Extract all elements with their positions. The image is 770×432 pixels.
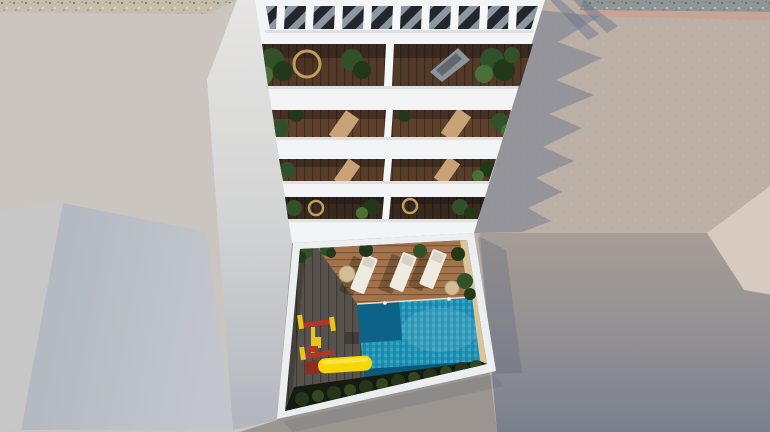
slab-shadow-line	[288, 219, 479, 222]
deck-drain	[345, 332, 359, 344]
hedge-bush	[327, 386, 341, 400]
pergola-slat	[334, 6, 343, 29]
pergola-slat	[392, 6, 401, 29]
terrace-plant	[289, 108, 303, 122]
pool-deep-section	[357, 301, 402, 343]
terrace-plant	[472, 170, 484, 182]
rooftop-pergola	[266, 6, 538, 29]
terrace-plant	[353, 61, 371, 79]
slab-shadow-line	[266, 86, 521, 89]
street-left	[0, 0, 292, 432]
render-canvas	[0, 0, 770, 432]
potted-plant	[457, 273, 473, 289]
aerial-render-scene	[0, 0, 770, 432]
potted-plant	[451, 247, 465, 261]
pergola-slat	[305, 6, 314, 29]
slab-shadow-line	[264, 30, 534, 33]
terrace-plant	[356, 207, 368, 219]
terrace-plant	[475, 65, 493, 83]
hedge-bush	[295, 392, 309, 406]
pergola-slat	[508, 6, 517, 29]
terrace-plant	[504, 47, 520, 63]
gravel-texture-right	[580, 0, 770, 12]
potted-plant	[464, 288, 476, 300]
pergola-slat	[276, 6, 285, 29]
swing-seat	[307, 346, 318, 352]
round-side-table	[445, 281, 459, 295]
terrace-plant	[286, 200, 302, 216]
round-side-table	[339, 266, 355, 282]
gravel-texture-left	[0, 0, 237, 14]
pool-light-dot	[383, 301, 387, 305]
hedge-bush	[344, 384, 356, 396]
terrace-plant	[273, 61, 293, 81]
pool-light-dot	[447, 297, 451, 301]
terrace-plant	[464, 207, 476, 219]
balcony-terrace-4	[285, 197, 485, 219]
pergola-slat	[421, 6, 430, 29]
pergola-slat	[363, 6, 372, 29]
pergola-slat	[450, 6, 459, 29]
pergola-slat	[479, 6, 488, 29]
slab-shadow-line	[283, 181, 490, 184]
potted-plant	[326, 248, 336, 258]
potted-plant	[413, 244, 427, 258]
water-glint	[402, 308, 478, 352]
hedge-bush	[312, 390, 324, 402]
terrace-plant	[398, 110, 410, 122]
balcony-terrace-1	[255, 44, 533, 86]
wicker-hanging-chair	[294, 51, 320, 77]
slab-shadow-line	[276, 137, 504, 140]
